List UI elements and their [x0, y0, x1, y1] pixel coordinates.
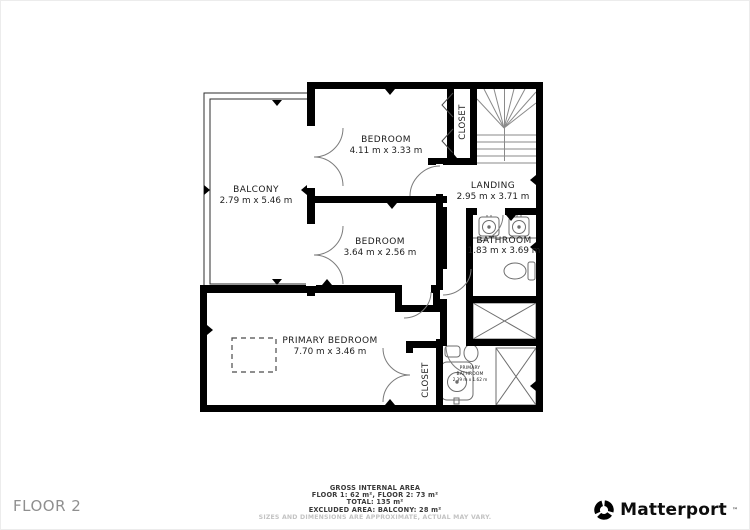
svg-text:BEDROOM: BEDROOM — [361, 135, 411, 145]
room-label-balcony: BALCONY 2.79 m x 5.46 m — [220, 185, 293, 206]
svg-text:BALCONY: BALCONY — [233, 185, 279, 195]
matterport-wordmark: Matterport — [620, 500, 727, 520]
svg-text:BATHROOM: BATHROOM — [476, 236, 531, 246]
svg-text:CLOSET: CLOSET — [421, 362, 431, 398]
staircase — [477, 89, 536, 163]
svg-text:CLOSET: CLOSET — [458, 104, 468, 140]
svg-text:PRIMARY BEDROOM: PRIMARY BEDROOM — [282, 336, 377, 346]
svg-text:2.39 m x 1.62 m: 2.39 m x 1.62 m — [453, 377, 488, 382]
dashed-floor-opening — [232, 338, 276, 372]
room-label-primary-bedroom: PRIMARY BEDROOM 7.70 m x 3.46 m — [282, 336, 377, 357]
room-label-bedroom-top: BEDROOM 4.11 m x 3.33 m — [350, 135, 423, 156]
trademark-symbol: ™ — [732, 507, 738, 514]
svg-text:2.79 m x 5.46 m: 2.79 m x 5.46 m — [220, 196, 293, 206]
floor-label: FLOOR 2 — [13, 497, 81, 515]
svg-text:PRIMARY: PRIMARY — [460, 365, 481, 371]
floorplan-page: BALCONY 2.79 m x 5.46 m BEDROOM 4.11 m x… — [0, 0, 750, 530]
svg-text:LANDING: LANDING — [471, 181, 515, 191]
svg-text:BEDROOM: BEDROOM — [355, 237, 405, 247]
matterport-logo: Matterport™ — [593, 499, 738, 521]
matterport-mark-icon — [593, 499, 615, 521]
room-label-primary-bathroom: PRIMARY BATHROOM 2.39 m x 1.62 m — [453, 365, 488, 382]
svg-text:4.11 m x 3.33 m: 4.11 m x 3.33 m — [350, 146, 423, 156]
svg-text:1.83 m x 3.69 m: 1.83 m x 3.69 m — [468, 246, 541, 256]
room-label-closet-bottom: CLOSET — [421, 362, 431, 398]
svg-text:2.95 m x 3.71 m: 2.95 m x 3.71 m — [457, 192, 530, 202]
floorplan-drawing: BALCONY 2.79 m x 5.46 m BEDROOM 4.11 m x… — [0, 0, 750, 530]
room-label-bathroom: BATHROOM 1.83 m x 3.69 m — [468, 236, 541, 256]
svg-text:3.64 m x 2.56 m: 3.64 m x 2.56 m — [344, 248, 417, 258]
room-label-closet-top: CLOSET — [458, 104, 468, 140]
room-label-bedroom-mid: BEDROOM 3.64 m x 2.56 m — [344, 237, 417, 258]
room-label-landing: LANDING 2.95 m x 3.71 m — [457, 181, 530, 202]
svg-text:7.70 m x 3.46 m: 7.70 m x 3.46 m — [294, 347, 367, 357]
